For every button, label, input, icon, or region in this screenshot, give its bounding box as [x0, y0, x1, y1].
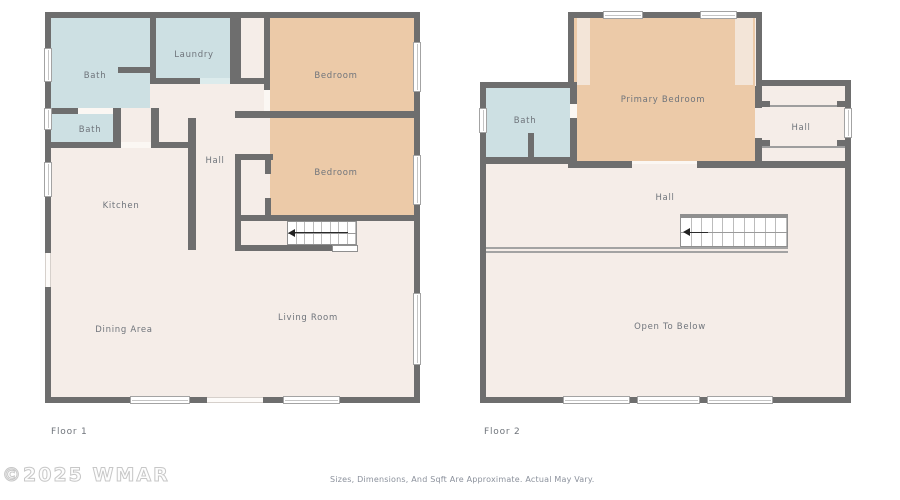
watermark: ©2025 WMAR [2, 464, 170, 486]
door-opening [632, 161, 697, 164]
floorplan-canvas: Bath Laundry Bedroom Bath Hall Kitchen B… [0, 0, 900, 500]
stair-arrow-icon [288, 229, 295, 237]
stair-direction-line [690, 232, 708, 233]
wall-floor2-upper-left [568, 12, 574, 88]
wall-floor2-step-right [756, 80, 851, 86]
interior-wall [235, 12, 241, 84]
interior-wall [755, 86, 762, 108]
interior-wall [762, 101, 770, 107]
room-label-hall-floor2: Hall [655, 193, 674, 203]
window [413, 155, 421, 205]
wall-opening [207, 397, 263, 403]
room-laundry [156, 18, 230, 78]
room-label-kitchen: Kitchen [103, 201, 140, 211]
interior-wall [151, 108, 159, 148]
room-label-bath-floor2: Bath [514, 116, 537, 126]
window [603, 11, 643, 19]
interior-wall [837, 101, 845, 107]
room-label-bedroom-top: Bedroom [314, 71, 357, 81]
window [844, 108, 852, 138]
railing [486, 251, 788, 253]
wall-primary-bedroom-bottom [697, 161, 845, 168]
stair-arrow-icon [683, 228, 690, 236]
interior-wall [45, 142, 121, 148]
room-label-dining-area: Dining Area [95, 325, 152, 335]
window [563, 396, 630, 404]
window [637, 396, 700, 404]
door-opening [200, 78, 230, 84]
door-opening [570, 104, 577, 118]
window [413, 293, 421, 365]
interior-wall [528, 133, 534, 159]
window [479, 108, 487, 133]
room-label-hall: Hall [205, 156, 224, 166]
interior-wall [570, 82, 577, 104]
room-bath-top [51, 18, 150, 108]
interior-wall [118, 67, 156, 73]
interior-wall [265, 154, 271, 174]
window [707, 396, 773, 404]
wall-kitchen-hall [188, 118, 196, 250]
stairs-floor1 [287, 221, 357, 245]
wall-bath-bottom [480, 157, 577, 164]
disclaimer-text: Sizes, Dimensions, And Sqft Are Approxim… [330, 475, 594, 484]
room-bedroom-mid [270, 118, 414, 215]
interior-wall [837, 140, 845, 146]
wall-floor2-step-left [480, 82, 577, 88]
wall-floor2-upper-right [756, 12, 762, 86]
window [700, 11, 737, 19]
stair-handrail [332, 245, 358, 252]
cased-opening [762, 105, 845, 107]
window [44, 108, 52, 130]
stair-direction-line [295, 232, 348, 233]
door-opening [264, 90, 270, 111]
door-opening [121, 142, 151, 148]
floor2-label: Floor 2 [484, 427, 521, 437]
interior-wall [150, 78, 200, 84]
wall-bedroom-divider [235, 111, 414, 118]
room-bedroom-top [270, 18, 414, 111]
room-primary-bedroom [574, 18, 755, 162]
room-label-primary-bedroom: Primary Bedroom [621, 95, 706, 105]
bedroom-inset-left [577, 18, 590, 85]
interior-wall [235, 78, 270, 84]
door-opening [78, 108, 113, 114]
window [44, 162, 52, 197]
wall-opening [45, 253, 51, 287]
room-label-open-to-below: Open To Below [634, 322, 706, 332]
railing [486, 247, 788, 249]
cased-opening [762, 146, 845, 148]
room-label-living-room: Living Room [278, 313, 338, 323]
room-label-bedroom-mid: Bedroom [314, 168, 357, 178]
window [130, 396, 190, 404]
stair-midline [288, 233, 356, 234]
interior-wall [235, 154, 241, 250]
room-label-hall-upper: Hall [791, 123, 810, 133]
room-label-laundry: Laundry [174, 50, 214, 60]
wall-primary-bedroom-bottom [568, 161, 632, 168]
room-label-bath-top: Bath [84, 71, 107, 81]
floor1-label: Floor 1 [51, 427, 88, 437]
wall-stair-bottom [235, 245, 332, 251]
interior-wall [755, 138, 762, 168]
bedroom-inset-right [735, 18, 753, 85]
window [283, 396, 340, 404]
window [44, 48, 52, 82]
interior-wall [570, 118, 577, 158]
interior-wall [762, 140, 770, 146]
window [413, 42, 421, 92]
room-label-bath-small: Bath [79, 125, 102, 135]
